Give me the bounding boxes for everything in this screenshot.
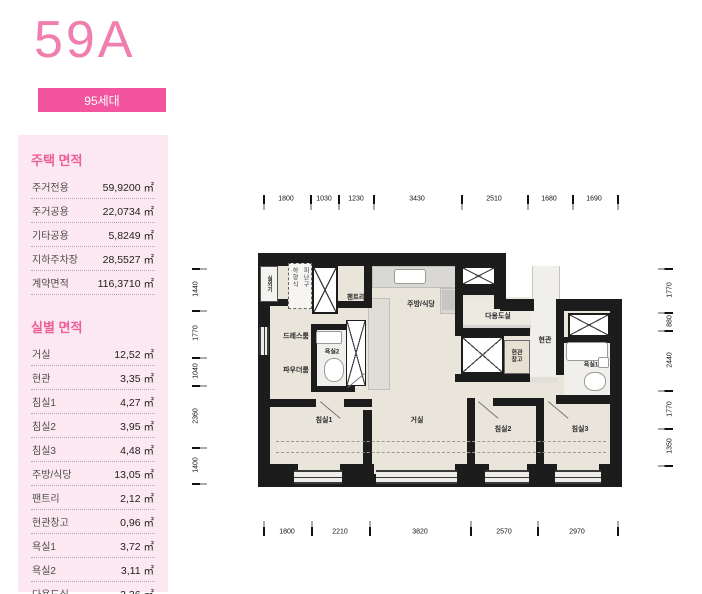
room-label-kitchen: 주방/식당 (407, 299, 435, 309)
wall (311, 324, 351, 330)
dimension-tick (470, 521, 472, 536)
storage-label-line1: 현관 (511, 350, 522, 357)
room-label-bed1: 침실1 (316, 415, 333, 425)
dimension-tick (192, 357, 207, 359)
area-info-panel: 주택 면적 주거전용59,9200 ㎡ 주거공용22,0734 ㎡ 기타공용5,… (18, 135, 168, 592)
room-label-entrance-storage: 현관 창고 (511, 350, 522, 363)
dimension-tick (658, 268, 673, 270)
room-label-bed3: 침실3 (572, 424, 589, 434)
kitchen-island (368, 298, 390, 390)
dimension-label: 2570 (496, 529, 512, 536)
row-label: 욕실1 (32, 538, 56, 553)
row-value: 2,12 ㎡ (120, 491, 154, 506)
dimension-label: 1030 (316, 196, 332, 203)
row-label: 주거전용 (32, 179, 69, 194)
wall (364, 266, 372, 306)
dimension-label: 1690 (586, 196, 602, 203)
row-value: 3,35 ㎡ (120, 371, 154, 386)
wall (467, 398, 475, 476)
row-value: 3,72 ㎡ (120, 539, 154, 554)
row-value: 116,3710 ㎡ (98, 276, 154, 291)
table-row: 기타공용5,8249 ㎡ (31, 223, 155, 247)
room-area-title: 실별 면적 (31, 317, 155, 336)
row-value: 5,8249 ㎡ (108, 228, 154, 243)
table-row: 다용도실3,36 ㎡ (31, 582, 155, 594)
storage-label-line2: 창고 (511, 357, 522, 364)
row-value: 12,52 ㎡ (114, 347, 154, 362)
shaft-box (568, 313, 610, 337)
wall (500, 299, 534, 311)
window (485, 470, 529, 484)
kitchen-sink (394, 269, 426, 284)
dimension-label: 1770 (193, 325, 200, 341)
dimension-label: 1230 (348, 196, 364, 203)
dimension-tick (461, 195, 463, 210)
table-row: 계약면적116,3710 ㎡ (31, 271, 155, 295)
dimension-label: 2360 (193, 408, 200, 424)
window (555, 470, 601, 484)
dimension-label: 880 (667, 315, 674, 327)
unit-count-badge: 95세대 (38, 88, 166, 112)
row-value: 4,48 ㎡ (120, 443, 154, 458)
window (259, 327, 269, 355)
row-label: 기타공용 (32, 227, 69, 242)
row-label: 침실3 (32, 442, 56, 457)
room-label-dressroom: 드레스룸 (283, 331, 309, 341)
row-value: 4,27 ㎡ (120, 395, 154, 410)
bath2-sink (316, 331, 342, 344)
dimension-tick (311, 521, 313, 536)
row-label: 다용도실 (32, 586, 69, 594)
room-label-bed2: 침실2 (495, 424, 512, 434)
table-row: 현관창고0,96 ㎡ (31, 510, 155, 534)
duct-box (346, 320, 366, 386)
room-label-bath2: 욕실2 (325, 347, 339, 356)
dimension-tick (537, 521, 539, 536)
dimension-tick (192, 385, 207, 387)
dimension-tick (658, 428, 673, 430)
dimension-label: 1440 (193, 281, 200, 297)
shaft-box (312, 266, 338, 314)
dimension-tick (192, 483, 207, 485)
dimension-tick (658, 465, 673, 467)
wall (264, 399, 316, 407)
row-value: 28,5527 ㎡ (103, 252, 154, 267)
dimension-tick (338, 195, 340, 210)
table-row: 욕실23,11 ㎡ (31, 558, 155, 582)
table-row: 거실12,52 ㎡ (31, 342, 155, 366)
room-label-bath1: 욕실1 (584, 360, 598, 369)
row-label: 지하주차장 (32, 251, 78, 266)
row-value: 59,9200 ㎡ (103, 180, 154, 195)
evac-label-line1: 하향식 (290, 267, 299, 308)
dimension-label: 1770 (667, 401, 674, 417)
dimension-tick (263, 195, 265, 210)
stove (442, 290, 456, 310)
dimension-label: 2970 (569, 529, 585, 536)
row-label: 주방/식당 (32, 466, 72, 481)
dimension-label: 1040 (193, 363, 200, 379)
row-label: 침실1 (32, 394, 56, 409)
row-value: 0,96 ㎡ (120, 515, 154, 530)
row-value: 3,11 ㎡ (121, 563, 154, 578)
room-label-powder: 파우더룸 (283, 365, 309, 375)
wall (363, 410, 372, 476)
wall (455, 286, 496, 295)
table-row: 침실14,27 ㎡ (31, 390, 155, 414)
room-label-utility: 다용도실 (485, 311, 511, 321)
dimension-tick (192, 447, 207, 449)
table-row: 팬트리2,12 ㎡ (31, 486, 155, 510)
wall (338, 301, 372, 308)
table-row: 주거공용22,0734 ㎡ (31, 199, 155, 223)
dimension-tick (310, 195, 312, 210)
shaft-box (461, 266, 496, 286)
bath2-toilet (324, 358, 344, 382)
dimension-label: 2510 (486, 196, 502, 203)
table-row: 주방/식당13,05 ㎡ (31, 462, 155, 486)
dimension-label: 2440 (667, 352, 674, 368)
row-value: 22,0734 ㎡ (103, 204, 154, 219)
table-row: 욕실13,72 ㎡ (31, 534, 155, 558)
wall (493, 398, 539, 406)
housing-area-title: 주택 면적 (31, 150, 155, 169)
bath1-toilet (584, 372, 606, 391)
table-row: 현관3,35 ㎡ (31, 366, 155, 390)
row-value: 3,36 ㎡ (120, 587, 154, 594)
balcony-extension-line (276, 441, 606, 442)
row-label: 욕실2 (32, 562, 56, 577)
room-label-entrance: 현관 (539, 335, 552, 345)
wall (536, 398, 544, 476)
wall (599, 464, 622, 487)
dimension-tick (527, 195, 529, 210)
evac-label-line2: 피난구 (301, 267, 310, 308)
wall (344, 399, 372, 407)
dimension-tick (572, 195, 574, 210)
wall (455, 374, 530, 382)
dimension-tick (658, 330, 673, 332)
wall (258, 464, 298, 487)
window (376, 470, 457, 484)
room-label-pantry: 팬트리 (347, 291, 365, 301)
row-label: 현관창고 (32, 514, 69, 529)
evacuation-hatch: 하향식 피난구 (288, 263, 312, 309)
room-label-outdoor-unit: 실외기 (265, 276, 273, 293)
row-label: 팬트리 (32, 490, 60, 505)
balcony-extension-line (276, 452, 606, 453)
table-row: 침실23,95 ㎡ (31, 414, 155, 438)
row-label: 침실2 (32, 418, 56, 433)
dimension-tick (373, 195, 375, 210)
table-row: 침실34,48 ㎡ (31, 438, 155, 462)
table-row: 주거전용59,9200 ㎡ (31, 175, 155, 199)
table-row: 지하주차장28,5527 ㎡ (31, 247, 155, 271)
bath1-sink (598, 357, 609, 368)
dimension-label: 1800 (278, 196, 294, 203)
room-area-table: 거실12,52 ㎡ 현관3,35 ㎡ 침실14,27 ㎡ 침실23,95 ㎡ 침… (31, 342, 155, 594)
dimension-label: 1800 (279, 529, 295, 536)
dimension-tick (192, 268, 207, 270)
dimension-tick (369, 521, 371, 536)
unit-title: 59A (34, 14, 136, 66)
dimension-label: 3820 (412, 529, 428, 536)
housing-area-table: 주거전용59,9200 ㎡ 주거공용22,0734 ㎡ 기타공용5,8249 ㎡… (31, 175, 155, 295)
dimension-label: 1680 (541, 196, 557, 203)
floorplan-page: 59A 95세대 주택 면적 주거전용59,9200 ㎡ 주거공용22,0734… (0, 0, 702, 594)
dimension-tick (617, 521, 619, 536)
entrance-step (530, 377, 558, 383)
wall (556, 395, 622, 404)
row-label: 현관 (32, 370, 50, 385)
window (294, 470, 342, 484)
dimension-label: 1350 (667, 438, 674, 454)
row-label: 주거공용 (32, 203, 69, 218)
dimension-label: 1770 (667, 282, 674, 298)
dimension-label: 1400 (193, 457, 200, 473)
row-value: 13,05 ㎡ (114, 467, 154, 482)
dimension-label: 3430 (409, 196, 425, 203)
dimension-tick (617, 195, 619, 210)
dimension-tick (658, 312, 673, 314)
elevator-shaft (461, 336, 504, 374)
dimension-label: 2210 (332, 529, 348, 536)
row-value: 3,95 ㎡ (120, 419, 154, 434)
room-label-living: 거실 (411, 415, 424, 425)
row-label: 계약면적 (32, 275, 69, 290)
dimension-tick (263, 521, 265, 536)
dimension-tick (192, 310, 207, 312)
row-label: 거실 (32, 346, 50, 361)
dimension-tick (658, 390, 673, 392)
wall (455, 328, 530, 336)
